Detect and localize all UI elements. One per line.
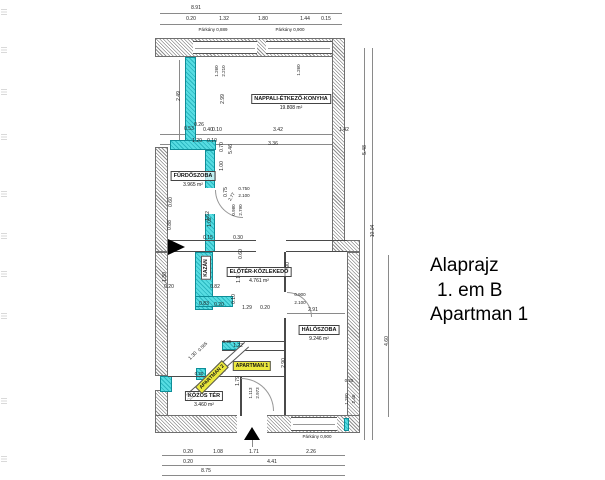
title-line3: Apartman 1	[430, 303, 528, 328]
dimension-label: 0.25	[223, 339, 232, 345]
dimension-label: 1.00	[219, 161, 225, 171]
dimension-label: 1.71	[249, 449, 259, 455]
dimension-label: 0.15	[321, 16, 331, 22]
dimension-label: 2.26	[306, 449, 316, 455]
edge-fragment	[1, 46, 7, 53]
wall-left-mid	[155, 252, 168, 376]
dimension-label: 0.900	[294, 292, 305, 298]
dim-line	[372, 48, 373, 440]
dimension-label: 1.113	[248, 388, 254, 399]
dimension-label: 1.30	[162, 272, 168, 282]
edge-fragment	[1, 397, 7, 404]
edge-fragment	[1, 232, 7, 239]
dimension-label: 2.790	[238, 204, 244, 215]
floor-plan-drawing: 8.910.201.321.801.440.15Párkány 0,889Pár…	[0, 0, 605, 480]
dimension-label: 0.60	[168, 197, 174, 207]
dimension-label: 1.30	[187, 350, 198, 361]
entrance-marker	[244, 427, 260, 440]
window-bottom	[291, 417, 337, 431]
room-area: 4.761 m²	[249, 278, 269, 284]
room-area: 3.965 m²	[183, 182, 203, 188]
room-label: FÜRDŐSZOBA	[171, 171, 216, 181]
wall-right-upper	[332, 38, 345, 252]
dimension-label: Párkány 0,900	[275, 27, 304, 33]
room-label: HÁLÓSZOBA	[299, 325, 340, 335]
dimension-label: Párkány 0,889	[198, 27, 227, 33]
dimension-label: 0.10	[212, 127, 222, 133]
dim-line	[364, 48, 365, 440]
dimension-label: 1.08	[213, 449, 223, 455]
wall-left-bath	[155, 147, 168, 252]
dimension-label: 2.100	[294, 300, 305, 306]
highlight-wall	[344, 418, 349, 431]
dim-line	[162, 475, 345, 476]
dimension-label: 0.60	[238, 249, 244, 259]
dimension-label: 1.260	[344, 393, 350, 404]
room-label: NAPPALI-ÉTKEZŐ-KONYHA	[251, 94, 331, 104]
dimension-label: 0.70	[219, 142, 225, 152]
dimension-label: 1.42	[339, 127, 349, 133]
room-area: 19.808 m²	[280, 105, 303, 111]
partition	[222, 350, 284, 351]
dimension-label: 0.20	[183, 449, 193, 455]
dimension-label: 2.100	[238, 193, 249, 199]
dimension-label: 0.20	[183, 459, 193, 465]
room-area: 9.246 m²	[309, 336, 329, 342]
dimension-label: 4.41	[267, 459, 277, 465]
edge-fragment	[1, 133, 7, 140]
dimension-label: 1.22	[233, 343, 243, 349]
edge-fragment	[1, 88, 7, 95]
dimension-label: 0.20	[164, 284, 174, 290]
dimension-label: 8.91	[191, 5, 201, 11]
partition	[168, 376, 284, 377]
highlight-wall	[160, 376, 172, 392]
dimension-label: 2.973	[255, 387, 261, 398]
dimension-label: 0.750	[238, 186, 249, 192]
dimension-label: 0.10	[207, 138, 217, 144]
dimension-label: 2.90	[281, 358, 287, 368]
dimension-label: 5.46	[228, 144, 234, 154]
dimension-label: 0.10	[231, 294, 237, 304]
dimension-label: 1.260	[214, 65, 220, 76]
edge-fragment	[1, 8, 7, 15]
dimension-label: 1.02	[207, 217, 213, 227]
dimension-label: 2.91	[308, 307, 318, 313]
dimension-label: 1.29	[242, 305, 252, 311]
title-line2: 1. em B	[430, 279, 528, 304]
edge-fragment	[1, 312, 7, 319]
dimension-label: 10.04	[370, 225, 376, 238]
edge-fragment	[1, 455, 7, 462]
apartment-tag: KAZÁN	[201, 256, 211, 280]
title-line1: Alaprajz	[430, 254, 528, 279]
dimension-label: 0.20	[186, 16, 196, 22]
room-label: KÖZÖS TÉR	[185, 391, 223, 401]
dimension-label: Párkány 0,900	[302, 434, 331, 440]
dimension-label: 0.82	[210, 284, 220, 290]
dimension-label: 0.20	[195, 371, 204, 377]
apartment-tag: APARTMAN 1	[233, 361, 271, 371]
dimension-label: 1.79	[235, 376, 241, 386]
title-block: Alaprajz 1. em B Apartman 1	[430, 254, 528, 328]
dimension-label: 1.80	[258, 16, 268, 22]
dimension-label: 2.210	[221, 65, 227, 76]
section-marker-left	[168, 239, 185, 255]
dim-line	[160, 24, 342, 25]
room-label: ELŐTÉR-KÖZLEKEDŐ	[227, 267, 292, 277]
room-area: 3.460 m²	[194, 402, 214, 408]
dim-line	[160, 13, 342, 14]
dimension-label: 5.48	[362, 145, 368, 155]
dimension-label: 0.20	[214, 302, 224, 308]
dimension-label: 1.44	[300, 16, 310, 22]
dimension-label: 0.30	[233, 235, 243, 241]
window-top-left	[193, 41, 257, 54]
wall-right-lower	[347, 252, 360, 433]
edge-fragment	[1, 270, 7, 277]
dimension-label: 0.15	[203, 235, 213, 241]
dimension-label: 1.260	[296, 64, 302, 75]
dimension-label: 8.75	[201, 468, 211, 474]
door-gap	[256, 238, 286, 254]
dimension-label: 1.20	[192, 138, 202, 144]
dimension-label: 3.42	[273, 127, 283, 133]
dim-line	[162, 465, 345, 466]
dimension-label: 2.99	[220, 94, 226, 104]
dimension-label: 4.60	[384, 336, 390, 346]
dimension-label: 3.36	[268, 141, 278, 147]
window-top-right	[266, 41, 332, 54]
dimension-label: 2.49	[176, 91, 182, 101]
dimension-label: 0.25	[345, 378, 354, 384]
highlight-wall	[185, 57, 196, 147]
dimension-label: 0.53	[184, 126, 194, 132]
dimension-label: 0.83	[199, 301, 209, 307]
dimension-label: 0.20	[260, 305, 270, 311]
edge-fragment	[1, 190, 7, 197]
dimension-label: 2.40	[351, 395, 357, 404]
dim-line	[162, 455, 345, 456]
dimension-label: 0.980	[231, 204, 237, 215]
dimension-label: 0.565	[197, 341, 209, 353]
dimension-label: 0.88	[167, 220, 173, 230]
dimension-label: 1.32	[219, 16, 229, 22]
